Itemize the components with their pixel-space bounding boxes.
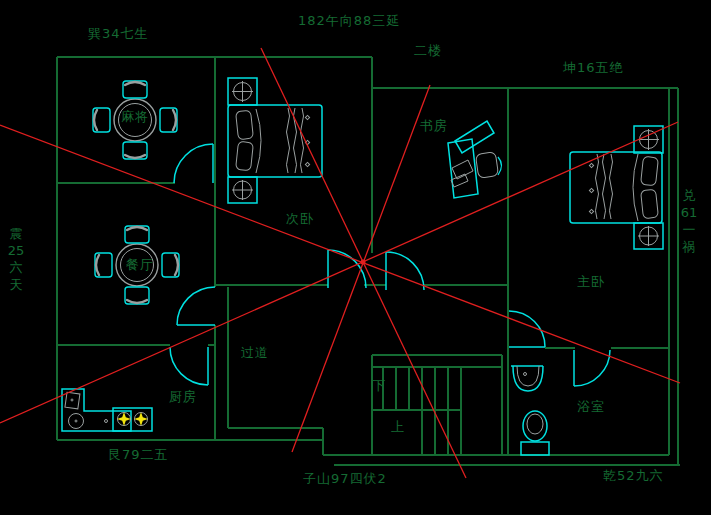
compass-label-top-right: 坤16五绝	[563, 61, 624, 75]
compass-label-top-center: 182午向88三延	[298, 14, 400, 28]
door-master-bedroom[interactable]	[509, 311, 545, 347]
door-bathroom[interactable]	[574, 350, 610, 386]
bed-master-bedroom[interactable]	[570, 126, 663, 249]
bed-second-bedroom[interactable]	[228, 78, 322, 203]
floor-label: 二楼	[414, 44, 442, 58]
compass-label-right-vertical: 兑 61 一 祸	[677, 189, 701, 254]
study-desk-chair[interactable]	[448, 121, 502, 198]
door-mahjong[interactable]	[174, 144, 213, 183]
compass-label-bottom-left: 艮79二五	[108, 448, 169, 462]
floorplan-drawing	[0, 0, 711, 515]
compass-label-top-left: 巽34七生	[88, 27, 149, 41]
room-label-second-bedroom: 次卧	[286, 212, 314, 226]
bathroom-sink[interactable]	[511, 366, 543, 391]
door-kitchen[interactable]	[170, 347, 208, 385]
room-label-study: 书房	[420, 119, 448, 133]
door-dining[interactable]	[177, 287, 215, 325]
compass-center-point	[361, 260, 366, 265]
room-label-master-bedroom: 主卧	[577, 275, 605, 289]
stove-burner	[117, 412, 131, 426]
room-label-mahjong: 麻将	[121, 110, 149, 124]
stove-burner	[134, 412, 148, 426]
staircase	[372, 355, 502, 455]
room-label-kitchen: 厨房	[169, 390, 197, 404]
room-label-hallway: 过道	[241, 346, 269, 360]
compass-label-bottom-center: 子山97四伏2	[303, 472, 387, 486]
stairs-label-up: 上	[391, 420, 405, 434]
floorplan-canvas[interactable]: 巽34七生 182午向88三延 二楼 坤16五绝 艮79二五 子山97四伏2 乾…	[0, 0, 711, 515]
toilet[interactable]	[521, 411, 549, 455]
compass-label-bottom-right: 乾52九六	[603, 469, 664, 483]
room-label-bathroom: 浴室	[577, 400, 605, 414]
room-label-dining: 餐厅	[126, 258, 154, 272]
stairs-label-down: 下	[372, 379, 386, 393]
compass-label-left-vertical: 震 25 六 天	[4, 227, 28, 292]
